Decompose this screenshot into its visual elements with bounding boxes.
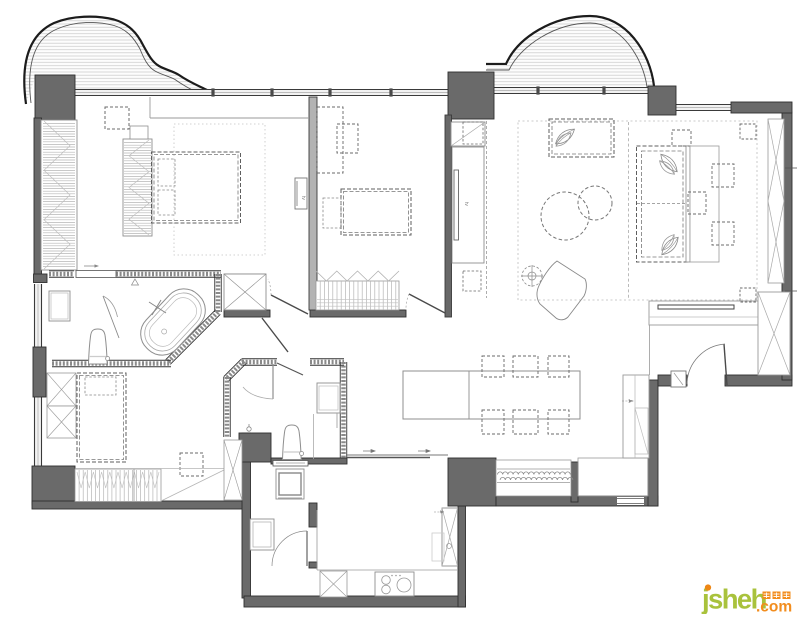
svg-text:tv: tv [463,202,469,206]
svg-text:tv: tv [300,196,306,200]
svg-text:.com: .com [756,599,792,615]
